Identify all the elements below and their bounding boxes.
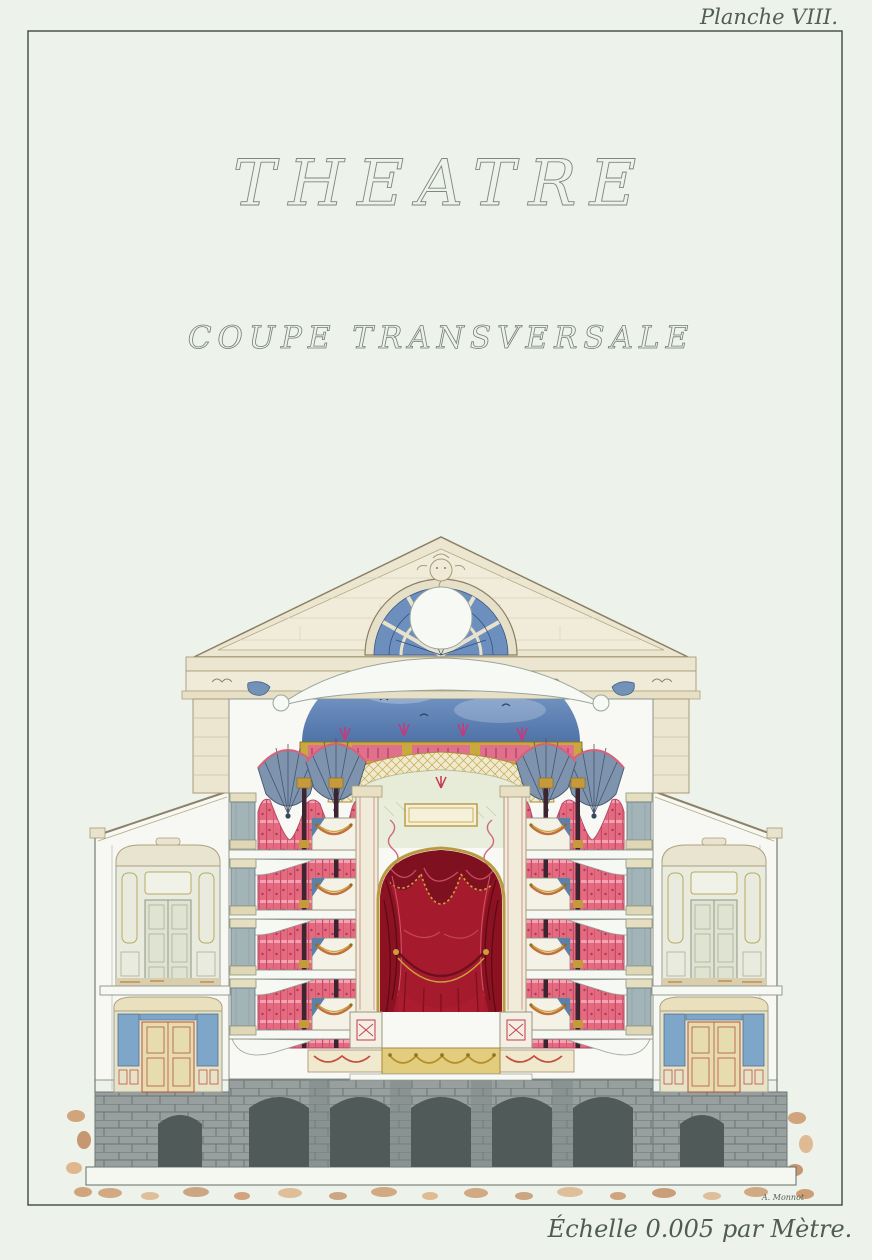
drawing-subtitle: COUPE TRANSVERSALE (188, 320, 695, 356)
theatre-section-plate: Planche VIII. THEATRE COUPE TRANSVERSALE (0, 0, 872, 1260)
scale-caption: Échelle 0.005 par Mètre. (547, 1214, 853, 1243)
room-lower-right (660, 997, 768, 1092)
plate-label: Planche VIII. (699, 5, 838, 29)
room-upper-left (100, 838, 230, 995)
artist-signature: A. Monnot (761, 1193, 805, 1202)
foundation-slab (86, 1167, 796, 1185)
corridor-columns-right (626, 793, 652, 1035)
drawing-title: THEATRE (233, 147, 650, 221)
corridor-columns-left (230, 793, 256, 1035)
room-lower-left (114, 997, 222, 1092)
room-upper-right (652, 838, 782, 995)
drawing-sheet: Planche VIII. THEATRE COUPE TRANSVERSALE (0, 0, 872, 1260)
